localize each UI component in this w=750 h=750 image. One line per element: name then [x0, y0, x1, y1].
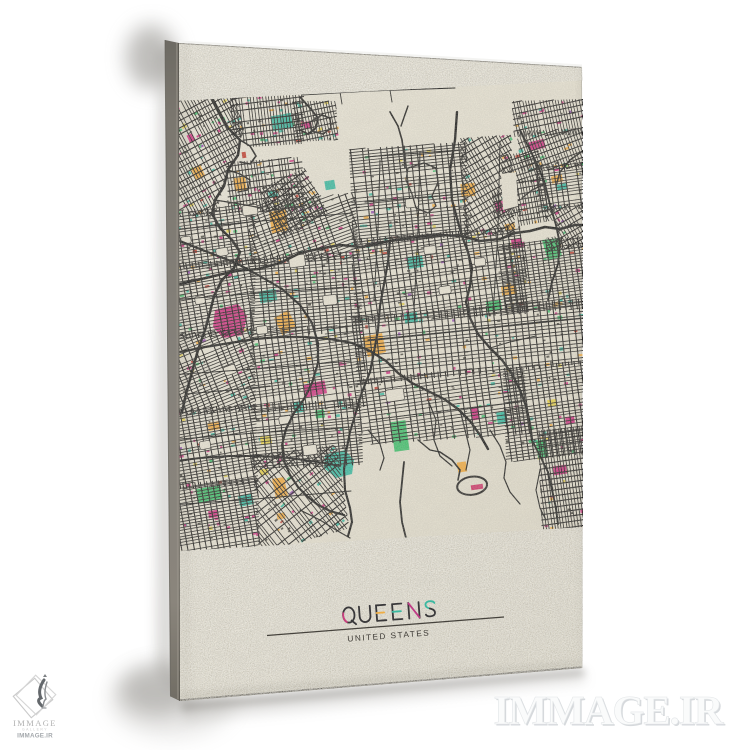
svg-text:GALLERY: GALLERY: [22, 728, 48, 732]
svg-text:IMMAGE.IR: IMMAGE.IR: [493, 687, 723, 733]
svg-text:IMMAGE.IR: IMMAGE.IR: [17, 733, 53, 740]
svg-text:IMMAGE: IMMAGE: [13, 718, 57, 728]
